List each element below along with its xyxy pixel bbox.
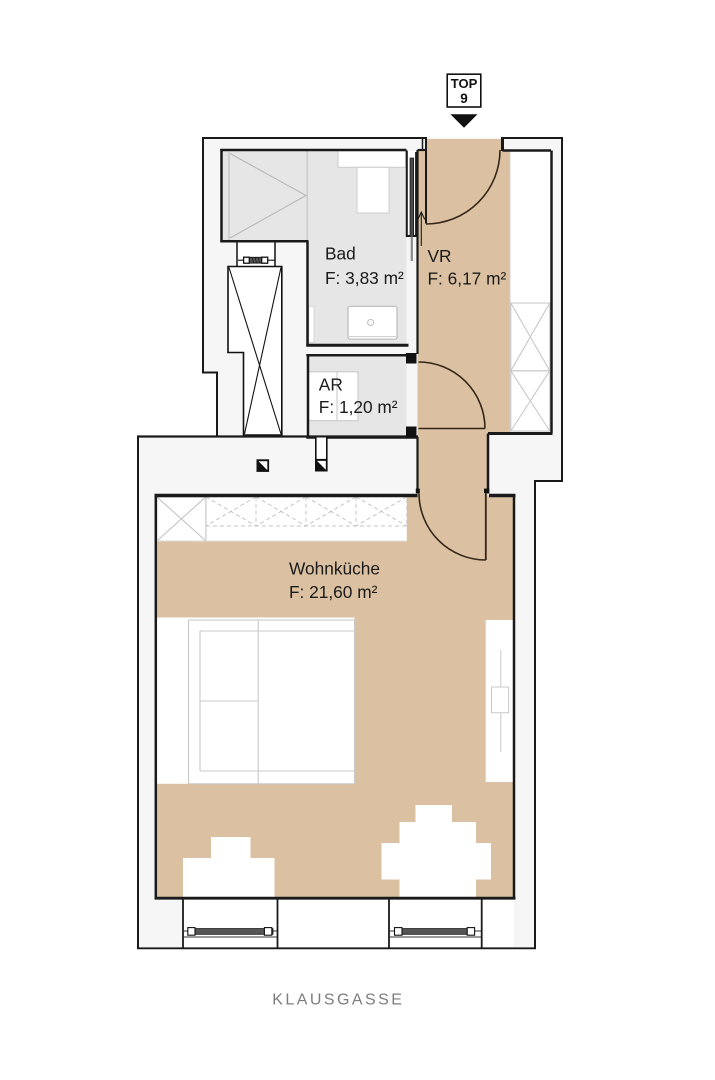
svg-text:Wohnküche: Wohnküche [289,559,380,579]
svg-text:Bad: Bad [325,243,356,263]
svg-text:F: 3,83 m²: F: 3,83 m² [325,268,404,288]
svg-text:AR: AR [319,375,343,395]
svg-text:KLAUSGASSE: KLAUSGASSE [272,992,404,1009]
svg-text:F: 1,20 m²: F: 1,20 m² [319,397,398,417]
svg-text:F: 6,17 m²: F: 6,17 m² [428,269,507,289]
svg-text:9: 9 [460,91,468,106]
svg-text:TOP: TOP [451,76,478,91]
svg-text:F: 21,60 m²: F: 21,60 m² [289,582,378,602]
svg-text:VR: VR [428,246,452,266]
